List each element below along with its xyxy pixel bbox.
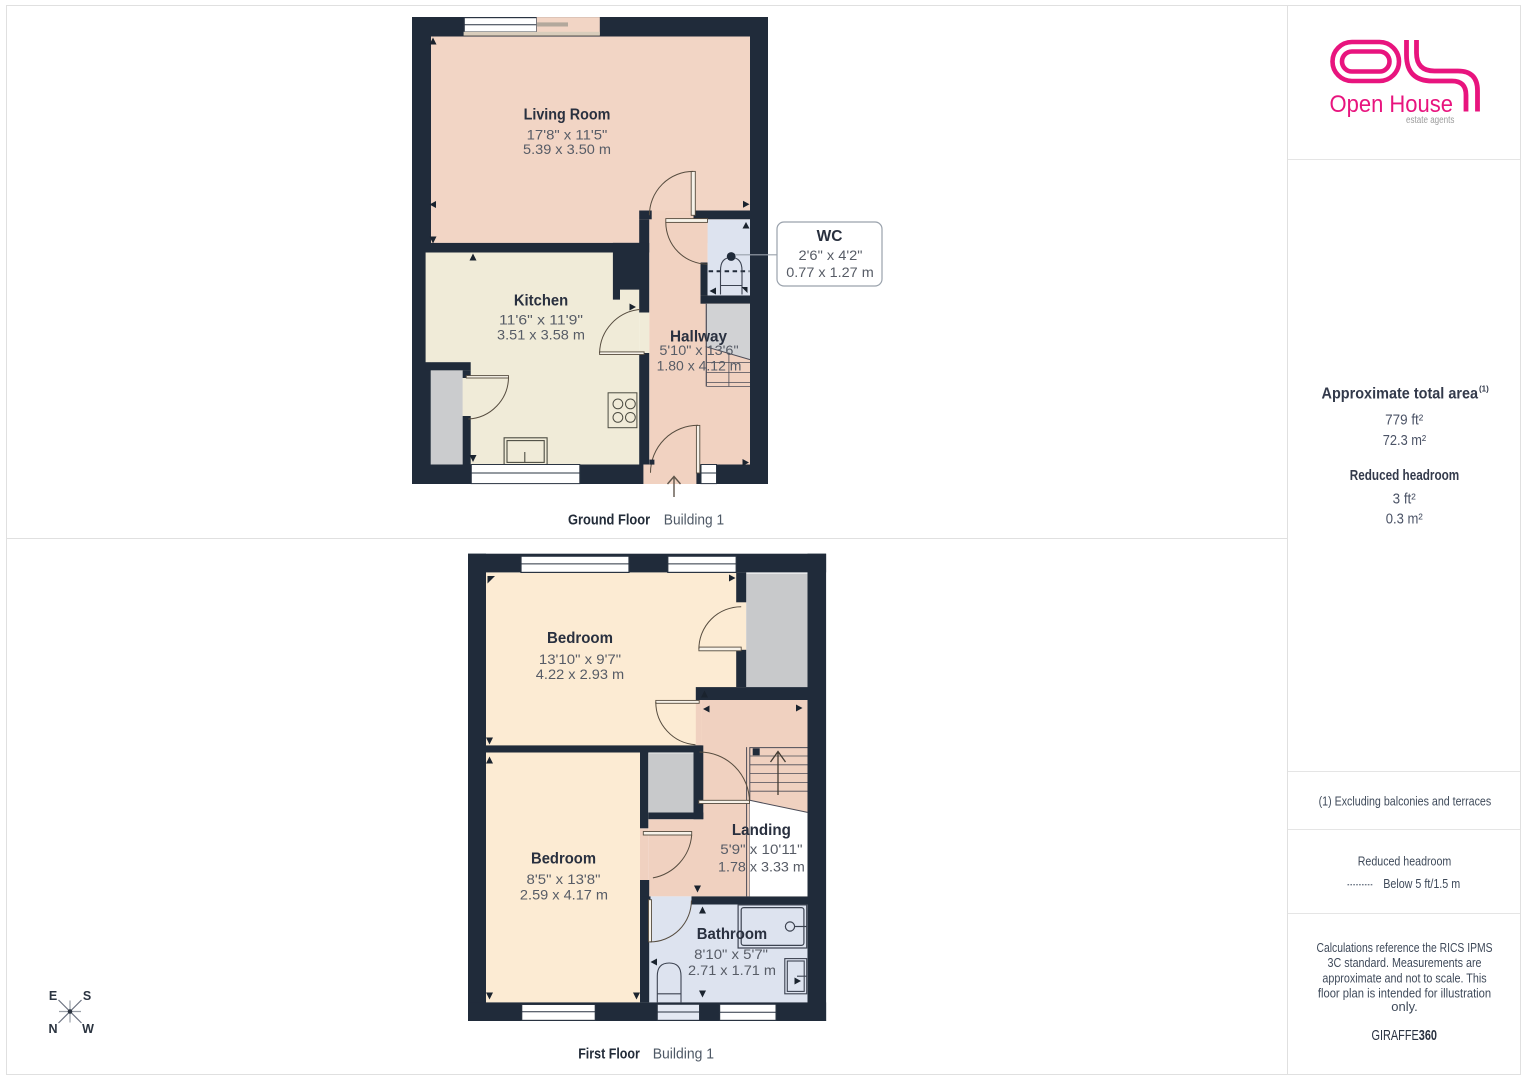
svg-text:Ground Floor: Ground Floor xyxy=(568,512,650,528)
svg-text:(1): (1) xyxy=(1479,384,1489,393)
svg-text:5.39 x 3.50 m: 5.39 x 3.50 m xyxy=(523,141,611,157)
svg-text:Calculations reference the RIC: Calculations reference the RICS IPMS xyxy=(1317,940,1493,955)
svg-text:3.51 x 3.58 m: 3.51 x 3.58 m xyxy=(497,326,585,342)
svg-text:Kitchen: Kitchen xyxy=(514,292,568,309)
svg-text:Below 5 ft/1.5 m: Below 5 ft/1.5 m xyxy=(1383,876,1460,891)
svg-text:approximate and not to scale.: approximate and not to scale. This xyxy=(1322,970,1487,985)
svg-text:13'10" x 9'7": 13'10" x 9'7" xyxy=(539,651,621,667)
svg-text:W: W xyxy=(82,1022,94,1036)
svg-text:Living Room: Living Room xyxy=(524,106,611,123)
svg-text:2'6" x 4'2": 2'6" x 4'2" xyxy=(799,247,863,263)
svg-text:0.3 m²: 0.3 m² xyxy=(1386,512,1423,528)
svg-text:5'10" x 13'6": 5'10" x 13'6" xyxy=(659,342,738,358)
svg-text:Bedroom: Bedroom xyxy=(547,630,613,647)
svg-text:5'9" x 10'11": 5'9" x 10'11" xyxy=(720,841,802,857)
svg-text:3 ft²: 3 ft² xyxy=(1393,492,1416,508)
svg-text:3C standard. Measurements are: 3C standard. Measurements are xyxy=(1328,955,1482,970)
svg-text:Open House: Open House xyxy=(1330,91,1454,118)
svg-text:only.: only. xyxy=(1391,999,1418,1014)
svg-text:First Floor: First Floor xyxy=(578,1046,640,1062)
svg-text:Building 1: Building 1 xyxy=(664,512,724,528)
svg-text:8'10" x 5'7": 8'10" x 5'7" xyxy=(694,946,768,962)
svg-text:1.78 x 3.33 m: 1.78 x 3.33 m xyxy=(718,858,805,874)
svg-text:(1) Excluding balconies and te: (1) Excluding balconies and terraces xyxy=(1319,793,1492,808)
svg-text:E: E xyxy=(49,989,57,1003)
svg-text:8'5" x 13'8": 8'5" x 13'8" xyxy=(527,871,601,887)
svg-text:N: N xyxy=(48,1022,57,1036)
svg-text:GIRAFFE360: GIRAFFE360 xyxy=(1372,1028,1438,1044)
svg-text:779 ft²: 779 ft² xyxy=(1385,413,1423,429)
svg-text:2.71 x 1.71 m: 2.71 x 1.71 m xyxy=(688,962,776,978)
svg-text:4.22 x 2.93 m: 4.22 x 2.93 m xyxy=(536,666,624,682)
svg-text:11'6" x 11'9": 11'6" x 11'9" xyxy=(499,312,583,328)
svg-text:Bathroom: Bathroom xyxy=(697,926,767,943)
svg-text:Landing: Landing xyxy=(732,822,791,839)
svg-text:2.59 x 4.17 m: 2.59 x 4.17 m xyxy=(520,887,608,903)
svg-text:Reduced headroom: Reduced headroom xyxy=(1358,854,1452,869)
svg-text:72.3 m²: 72.3 m² xyxy=(1383,433,1427,449)
svg-text:S: S xyxy=(83,989,91,1003)
svg-text:estate agents: estate agents xyxy=(1406,115,1454,126)
svg-text:WC: WC xyxy=(817,228,843,245)
svg-text:17'8" x 11'5": 17'8" x 11'5" xyxy=(527,126,608,142)
svg-text:Building 1: Building 1 xyxy=(653,1046,714,1062)
svg-text:Approximate total area: Approximate total area xyxy=(1322,385,1479,402)
svg-text:Reduced headroom: Reduced headroom xyxy=(1350,468,1459,484)
svg-text:0.77 x 1.27 m: 0.77 x 1.27 m xyxy=(786,264,874,280)
svg-text:1.80 x 4.12 m: 1.80 x 4.12 m xyxy=(657,358,742,374)
svg-text:Bedroom: Bedroom xyxy=(531,851,596,868)
